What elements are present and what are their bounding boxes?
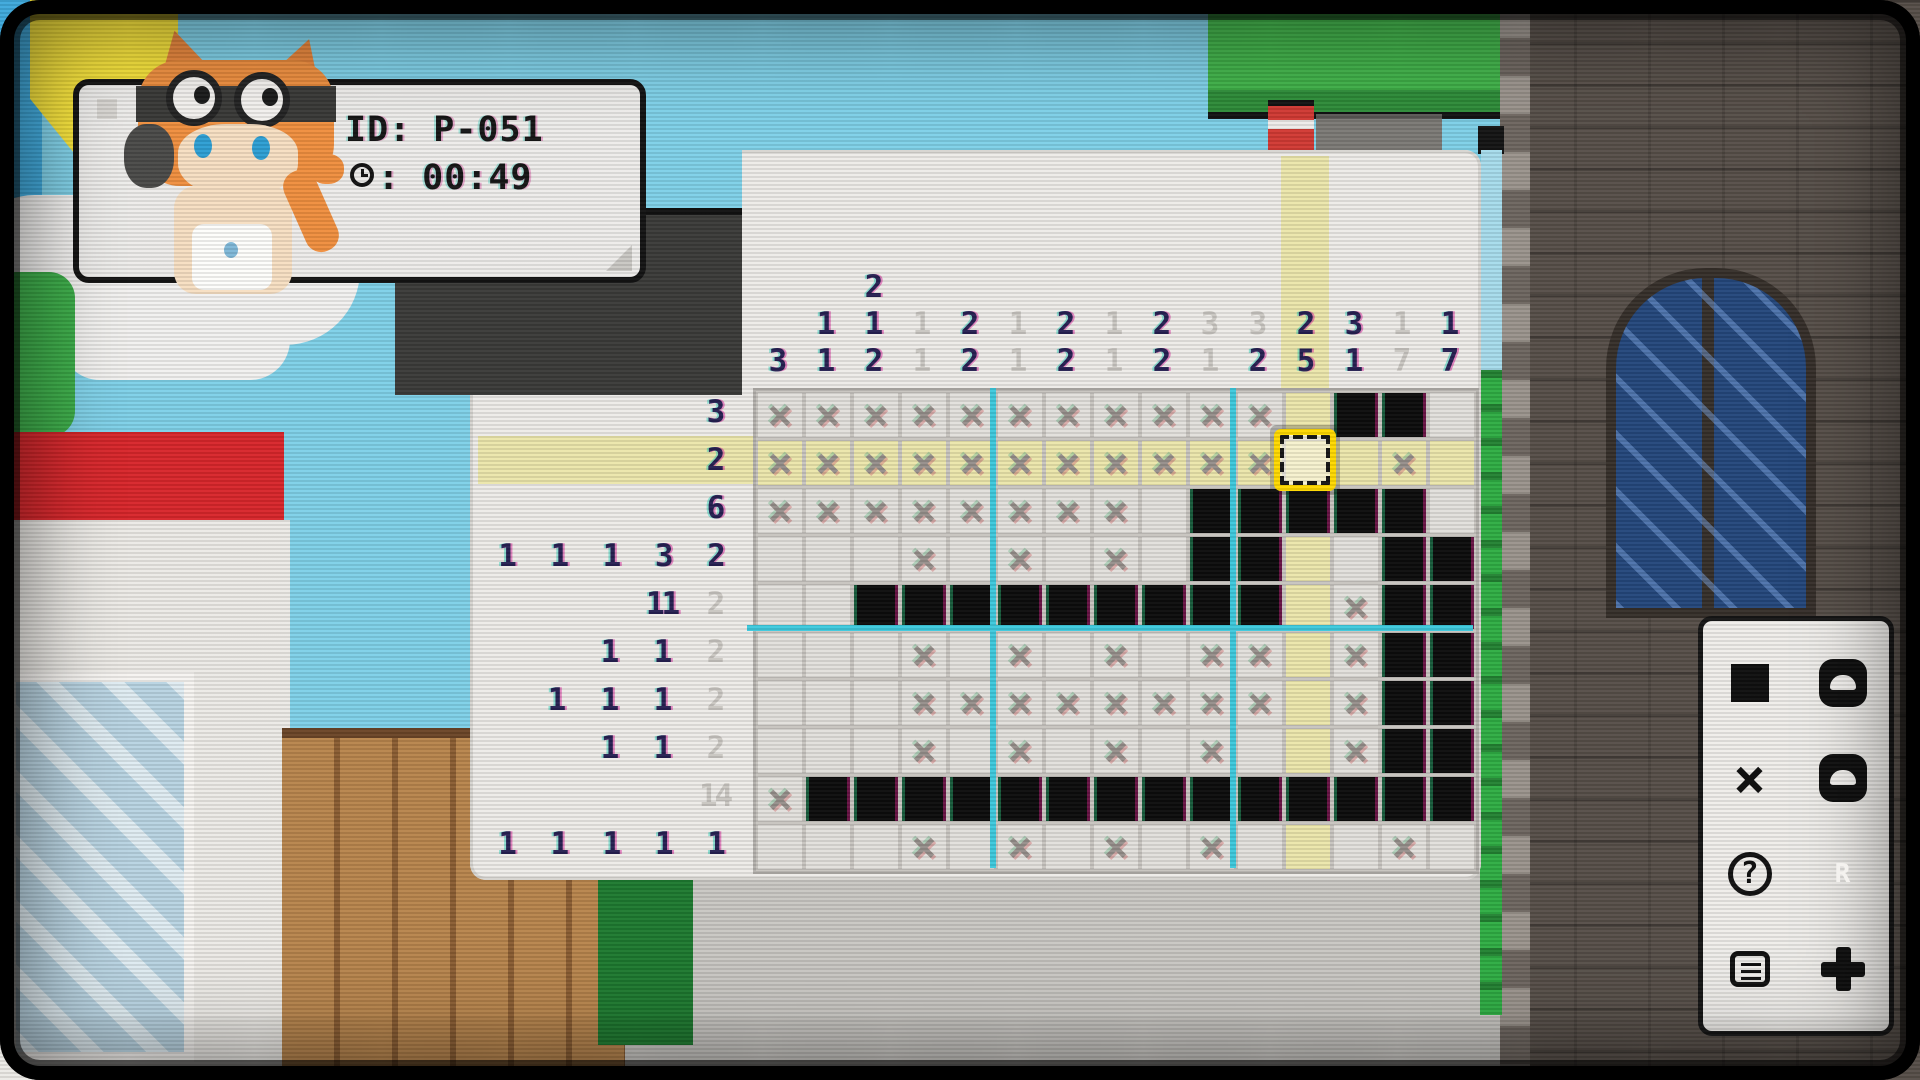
bib-dot	[224, 242, 238, 258]
grid-cell[interactable]	[756, 583, 804, 631]
grid-cell[interactable]	[1140, 823, 1188, 871]
grid-cell[interactable]	[756, 439, 804, 487]
grid-cell[interactable]	[756, 775, 804, 823]
grid-cell[interactable]	[996, 727, 1044, 775]
grid-cell[interactable]	[1188, 583, 1236, 631]
grid-cell[interactable]	[756, 391, 804, 439]
hint-number: 2	[688, 589, 741, 620]
grid-cell[interactable]	[852, 679, 900, 727]
grid-cell[interactable]	[1140, 775, 1188, 823]
hint-number: 1	[635, 733, 688, 764]
grid-cell[interactable]	[1428, 823, 1476, 871]
grid-cell[interactable]	[852, 727, 900, 775]
grid-cell[interactable]	[948, 727, 996, 775]
grid-cell[interactable]	[1428, 391, 1476, 439]
grid-cell[interactable]	[1044, 583, 1092, 631]
grid-cell[interactable]	[1236, 391, 1284, 439]
grid-cell[interactable]	[1380, 727, 1428, 775]
grid-cell[interactable]	[804, 727, 852, 775]
row-hint: 2	[480, 436, 741, 484]
column-hint: 11	[993, 230, 1041, 380]
grid-cell[interactable]	[852, 391, 900, 439]
grid-cell[interactable]	[1380, 535, 1428, 583]
grid-cell[interactable]	[1428, 775, 1476, 823]
hint-number: 1	[913, 343, 930, 380]
hint-number: 7	[1393, 343, 1410, 380]
grid-cell[interactable]	[1092, 535, 1140, 583]
grid-cell[interactable]	[1044, 679, 1092, 727]
picross-grid[interactable]	[753, 388, 1479, 874]
row-hint: 11132	[480, 532, 741, 580]
grid-cell[interactable]	[1044, 535, 1092, 583]
grid-cell[interactable]	[852, 631, 900, 679]
grid-cell[interactable]	[996, 631, 1044, 679]
grid-cell[interactable]	[852, 775, 900, 823]
grid-cell[interactable]	[1428, 487, 1476, 535]
menu-icon[interactable]	[1724, 943, 1776, 995]
grid-cell[interactable]	[804, 391, 852, 439]
grid-cell[interactable]	[900, 679, 948, 727]
grid-cell[interactable]	[1332, 487, 1380, 535]
grid-cell[interactable]	[756, 535, 804, 583]
row-hint: 14	[480, 772, 741, 820]
grid-cell[interactable]	[1428, 679, 1476, 727]
grid-cell[interactable]	[804, 535, 852, 583]
hint-number: 11	[635, 589, 688, 620]
hint-number: 3	[688, 397, 741, 428]
grid-cell[interactable]	[1428, 439, 1476, 487]
grid-cell[interactable]	[1092, 439, 1140, 487]
hint-number: 3	[1345, 306, 1362, 343]
grid-cell[interactable]	[1284, 391, 1332, 439]
grid-cell[interactable]	[804, 679, 852, 727]
grid-cell[interactable]	[1380, 823, 1428, 871]
hint-number: 1	[1105, 306, 1122, 343]
game-screen: 311212112211221122313225311717 326111321…	[0, 0, 1920, 1080]
grid-cell[interactable]	[948, 631, 996, 679]
column-hint: 17	[1377, 230, 1425, 380]
grid-cell[interactable]	[804, 487, 852, 535]
grid-cell[interactable]	[948, 679, 996, 727]
puzzle-id-label: ID: P-051	[345, 110, 544, 150]
grid-cell[interactable]	[900, 487, 948, 535]
hint-number: 1	[582, 733, 635, 764]
row-hint: 3	[480, 388, 741, 436]
foliage	[1480, 370, 1502, 1015]
grid-cell[interactable]	[1092, 775, 1140, 823]
hint-number: 2	[1153, 306, 1170, 343]
hint-number: 2	[1249, 343, 1266, 380]
grid-cell[interactable]	[852, 439, 900, 487]
grid-cell[interactable]	[1284, 535, 1332, 583]
grid-cell[interactable]	[1284, 823, 1332, 871]
pad-button-a-icon[interactable]	[1817, 657, 1869, 709]
hint-number: 7	[1441, 343, 1458, 380]
grid-cell[interactable]	[900, 439, 948, 487]
grid-cell[interactable]	[1092, 487, 1140, 535]
grid-cell[interactable]	[900, 535, 948, 583]
grid-cell[interactable]	[1428, 727, 1476, 775]
column-hint: 17	[1425, 230, 1473, 380]
grid-cell[interactable]	[1044, 823, 1092, 871]
hint-number: 3	[637, 541, 689, 572]
hint-number: 2	[688, 637, 741, 668]
hint-number: 1	[1441, 306, 1458, 343]
grid-cell[interactable]	[900, 775, 948, 823]
grid-cell[interactable]	[948, 439, 996, 487]
hint-number: 1	[1009, 306, 1026, 343]
hint-number: 1	[635, 637, 688, 668]
grid-cell[interactable]	[1140, 535, 1188, 583]
cat-eye	[194, 134, 212, 158]
column-hint: 32	[1233, 230, 1281, 380]
hint-number: 2	[689, 541, 741, 572]
bush	[0, 272, 75, 437]
grid-cell[interactable]	[1284, 727, 1332, 775]
grid-cell[interactable]	[996, 583, 1044, 631]
hint-number: 5	[1297, 343, 1314, 380]
grid-cell[interactable]	[756, 823, 804, 871]
hint-number: 1	[689, 829, 741, 860]
hint-number: 2	[1153, 343, 1170, 380]
hint-number: 1	[913, 306, 930, 343]
cat-paw	[310, 154, 344, 184]
grid-cell[interactable]	[804, 823, 852, 871]
grid-cell[interactable]	[756, 727, 804, 775]
grid-cell[interactable]	[900, 727, 948, 775]
grid-cell[interactable]	[1380, 391, 1428, 439]
grid-cell[interactable]	[1188, 439, 1236, 487]
grid-cell[interactable]	[996, 487, 1044, 535]
grid-cell[interactable]	[1188, 631, 1236, 679]
grid-cell[interactable]	[1284, 487, 1332, 535]
grid-cell[interactable]	[804, 631, 852, 679]
hint-number: 1	[1105, 343, 1122, 380]
grid-cell[interactable]	[1380, 631, 1428, 679]
pad-button-plus-icon[interactable]	[1817, 943, 1869, 995]
grid-cell[interactable]	[1188, 727, 1236, 775]
grid-cell[interactable]	[1092, 823, 1140, 871]
grid-cell[interactable]	[1380, 775, 1428, 823]
cloud	[60, 300, 290, 380]
grid-cell[interactable]	[1332, 535, 1380, 583]
grid-cell[interactable]	[996, 391, 1044, 439]
hint-number: 2	[961, 306, 978, 343]
grid-cell[interactable]	[1188, 679, 1236, 727]
grid-cursor	[1279, 434, 1331, 486]
grid-cell[interactable]	[1140, 583, 1188, 631]
hint-number: 2	[688, 685, 741, 716]
legend-row	[1703, 943, 1889, 995]
grid-cell[interactable]	[1092, 583, 1140, 631]
grid-cell[interactable]	[804, 583, 852, 631]
controls-legend-panel: ×?R	[1698, 616, 1894, 1036]
grid-cell[interactable]	[1044, 727, 1092, 775]
row-hint: 1112	[480, 676, 741, 724]
grid-cell[interactable]	[1092, 631, 1140, 679]
column-hint: 11	[801, 230, 849, 380]
timer-label: : 00:49	[378, 158, 533, 198]
grid-cell[interactable]	[1428, 583, 1476, 631]
grid-cell[interactable]	[1044, 391, 1092, 439]
column-hint: 212	[849, 230, 897, 380]
grid-cell[interactable]	[1236, 583, 1284, 631]
grid-cell[interactable]	[1044, 775, 1092, 823]
grid-cell[interactable]	[1380, 679, 1428, 727]
goggles-pupil	[262, 88, 278, 106]
hint-number: 2	[865, 269, 882, 306]
grid-cell[interactable]	[1140, 631, 1188, 679]
grid-cell[interactable]	[1044, 439, 1092, 487]
grid-cell[interactable]	[900, 583, 948, 631]
window	[6, 672, 194, 1062]
grid-cell[interactable]	[1236, 727, 1284, 775]
column-hint: 11	[1089, 230, 1137, 380]
row-hint: 11111	[480, 820, 741, 868]
hint-number: 14	[688, 781, 741, 812]
grid-cell[interactable]	[1188, 775, 1236, 823]
grid-cell[interactable]	[1380, 583, 1428, 631]
box-fold-decor	[606, 245, 632, 271]
grid-cell[interactable]	[996, 535, 1044, 583]
grid-cell[interactable]	[1188, 535, 1236, 583]
hint-number: 1	[817, 306, 834, 343]
grid-cell[interactable]	[804, 775, 852, 823]
grid-cell[interactable]	[1284, 583, 1332, 631]
grid-cell[interactable]	[804, 439, 852, 487]
tower-edge	[1500, 0, 1530, 1080]
hint-number: 1	[865, 306, 882, 343]
grid-cell[interactable]	[948, 391, 996, 439]
hint-number: 2	[961, 343, 978, 380]
column-hint: 31	[1185, 230, 1233, 380]
grid-cell[interactable]	[900, 631, 948, 679]
grid-cell[interactable]	[996, 679, 1044, 727]
hint-number: 1	[1345, 343, 1362, 380]
grid-cell[interactable]	[1332, 583, 1380, 631]
grid-cell[interactable]	[1236, 631, 1284, 679]
grid-cell[interactable]	[1092, 391, 1140, 439]
column-hint: 11	[897, 230, 945, 380]
grid-cell[interactable]	[1332, 631, 1380, 679]
grid-cell[interactable]	[1236, 775, 1284, 823]
column-hint: 22	[1137, 230, 1185, 380]
hint-number: 1	[1009, 343, 1026, 380]
grid-cell[interactable]	[1236, 823, 1284, 871]
hint-number: 2	[1297, 306, 1314, 343]
hint-number: 2	[1057, 343, 1074, 380]
legend-row: ?R	[1703, 848, 1889, 900]
grid-cell[interactable]	[1140, 439, 1188, 487]
grid-cell[interactable]	[948, 775, 996, 823]
grid-cell[interactable]	[756, 679, 804, 727]
grid-cell[interactable]	[948, 823, 996, 871]
hint-number: 1	[817, 343, 834, 380]
goggles-pupil	[194, 86, 210, 104]
pad-button-b-icon[interactable]	[1817, 752, 1869, 804]
fill-square-icon[interactable]	[1724, 657, 1776, 709]
grid-cell[interactable]	[948, 583, 996, 631]
grid-cell[interactable]	[1188, 487, 1236, 535]
grid-cell[interactable]	[756, 487, 804, 535]
hint-number: 1	[637, 829, 689, 860]
grid-cell[interactable]	[1332, 679, 1380, 727]
hint-number: 2	[688, 445, 741, 476]
grid-cell[interactable]	[1284, 775, 1332, 823]
grid-cell[interactable]	[1140, 727, 1188, 775]
grid-cell[interactable]	[900, 823, 948, 871]
grid-cell[interactable]	[996, 439, 1044, 487]
hint-number: 1	[480, 829, 532, 860]
hint-number: 3	[769, 343, 786, 380]
row-hint: 112	[480, 724, 741, 772]
grid-cell[interactable]	[1380, 439, 1428, 487]
hint-number: 1	[532, 829, 584, 860]
hint-number: 1	[635, 685, 688, 716]
grid-cell[interactable]	[1332, 775, 1380, 823]
guide-line-horizontal	[747, 625, 1473, 631]
hint-number: 3	[1249, 306, 1266, 343]
headphone-cup	[124, 124, 174, 188]
hint-number: 3	[1201, 306, 1218, 343]
hint-number: 6	[688, 493, 741, 524]
legend-row	[1703, 657, 1889, 709]
hint-number: 1	[529, 685, 582, 716]
grid-cell[interactable]	[996, 775, 1044, 823]
grid-cell[interactable]	[996, 823, 1044, 871]
grid-cell[interactable]	[948, 487, 996, 535]
hint-number: 1	[1393, 306, 1410, 343]
grid-cell[interactable]	[1092, 679, 1140, 727]
grid-cell[interactable]	[1236, 535, 1284, 583]
grid-cell[interactable]	[1428, 631, 1476, 679]
grid-cell[interactable]	[1140, 487, 1188, 535]
help-icon[interactable]: ?	[1724, 848, 1776, 900]
hint-number: 1	[584, 541, 636, 572]
grid-cell[interactable]	[756, 631, 804, 679]
grid-cell[interactable]	[852, 823, 900, 871]
grid-cell[interactable]	[1236, 439, 1284, 487]
awning	[12, 432, 284, 524]
grid-cell[interactable]	[852, 583, 900, 631]
arched-window	[1606, 268, 1816, 618]
column-hint: 22	[1041, 230, 1089, 380]
grid-cell[interactable]	[852, 535, 900, 583]
grid-cell[interactable]	[1092, 727, 1140, 775]
grid-cell[interactable]	[1140, 679, 1188, 727]
grid-cell[interactable]	[1284, 679, 1332, 727]
hint-number: 2	[688, 733, 741, 764]
grid-cell[interactable]	[1140, 391, 1188, 439]
hint-number: 2	[865, 343, 882, 380]
grid-cell[interactable]	[1380, 487, 1428, 535]
grid-cell[interactable]	[900, 391, 948, 439]
column-hint: 25	[1281, 230, 1329, 380]
pad-button-r-icon[interactable]: R	[1817, 848, 1869, 900]
grid-cell[interactable]	[1188, 823, 1236, 871]
grid-cell[interactable]	[1284, 631, 1332, 679]
grid-cell[interactable]	[852, 487, 900, 535]
hint-number: 1	[1201, 343, 1218, 380]
row-hint: 112	[480, 580, 741, 628]
grid-cell[interactable]	[1044, 487, 1092, 535]
grid-cell[interactable]	[1428, 535, 1476, 583]
grid-cell[interactable]	[1332, 727, 1380, 775]
grid-cell[interactable]	[1332, 823, 1380, 871]
hint-number: 1	[582, 685, 635, 716]
column-hint: 22	[945, 230, 993, 380]
grid-cell[interactable]	[1188, 391, 1236, 439]
x-mark-icon[interactable]: ×	[1724, 752, 1776, 804]
hint-number: 1	[584, 829, 636, 860]
legend-row: ×	[1703, 752, 1889, 804]
column-hint: 31	[1329, 230, 1377, 380]
grid-cell[interactable]	[1332, 391, 1380, 439]
row-hint: 112	[480, 628, 741, 676]
character-avatar	[66, 28, 366, 298]
cat-eye	[252, 136, 270, 160]
hint-number: 1	[480, 541, 532, 572]
grid-cell[interactable]	[1236, 487, 1284, 535]
hint-number: 2	[1057, 306, 1074, 343]
hint-number: 1	[532, 541, 584, 572]
column-hint: 3	[753, 230, 801, 380]
grid-cell[interactable]	[948, 535, 996, 583]
row-hint: 6	[480, 484, 741, 532]
grid-cell[interactable]	[1236, 679, 1284, 727]
grid-cell[interactable]	[1044, 631, 1092, 679]
grid-cell[interactable]	[1332, 439, 1380, 487]
hint-number: 1	[582, 637, 635, 668]
